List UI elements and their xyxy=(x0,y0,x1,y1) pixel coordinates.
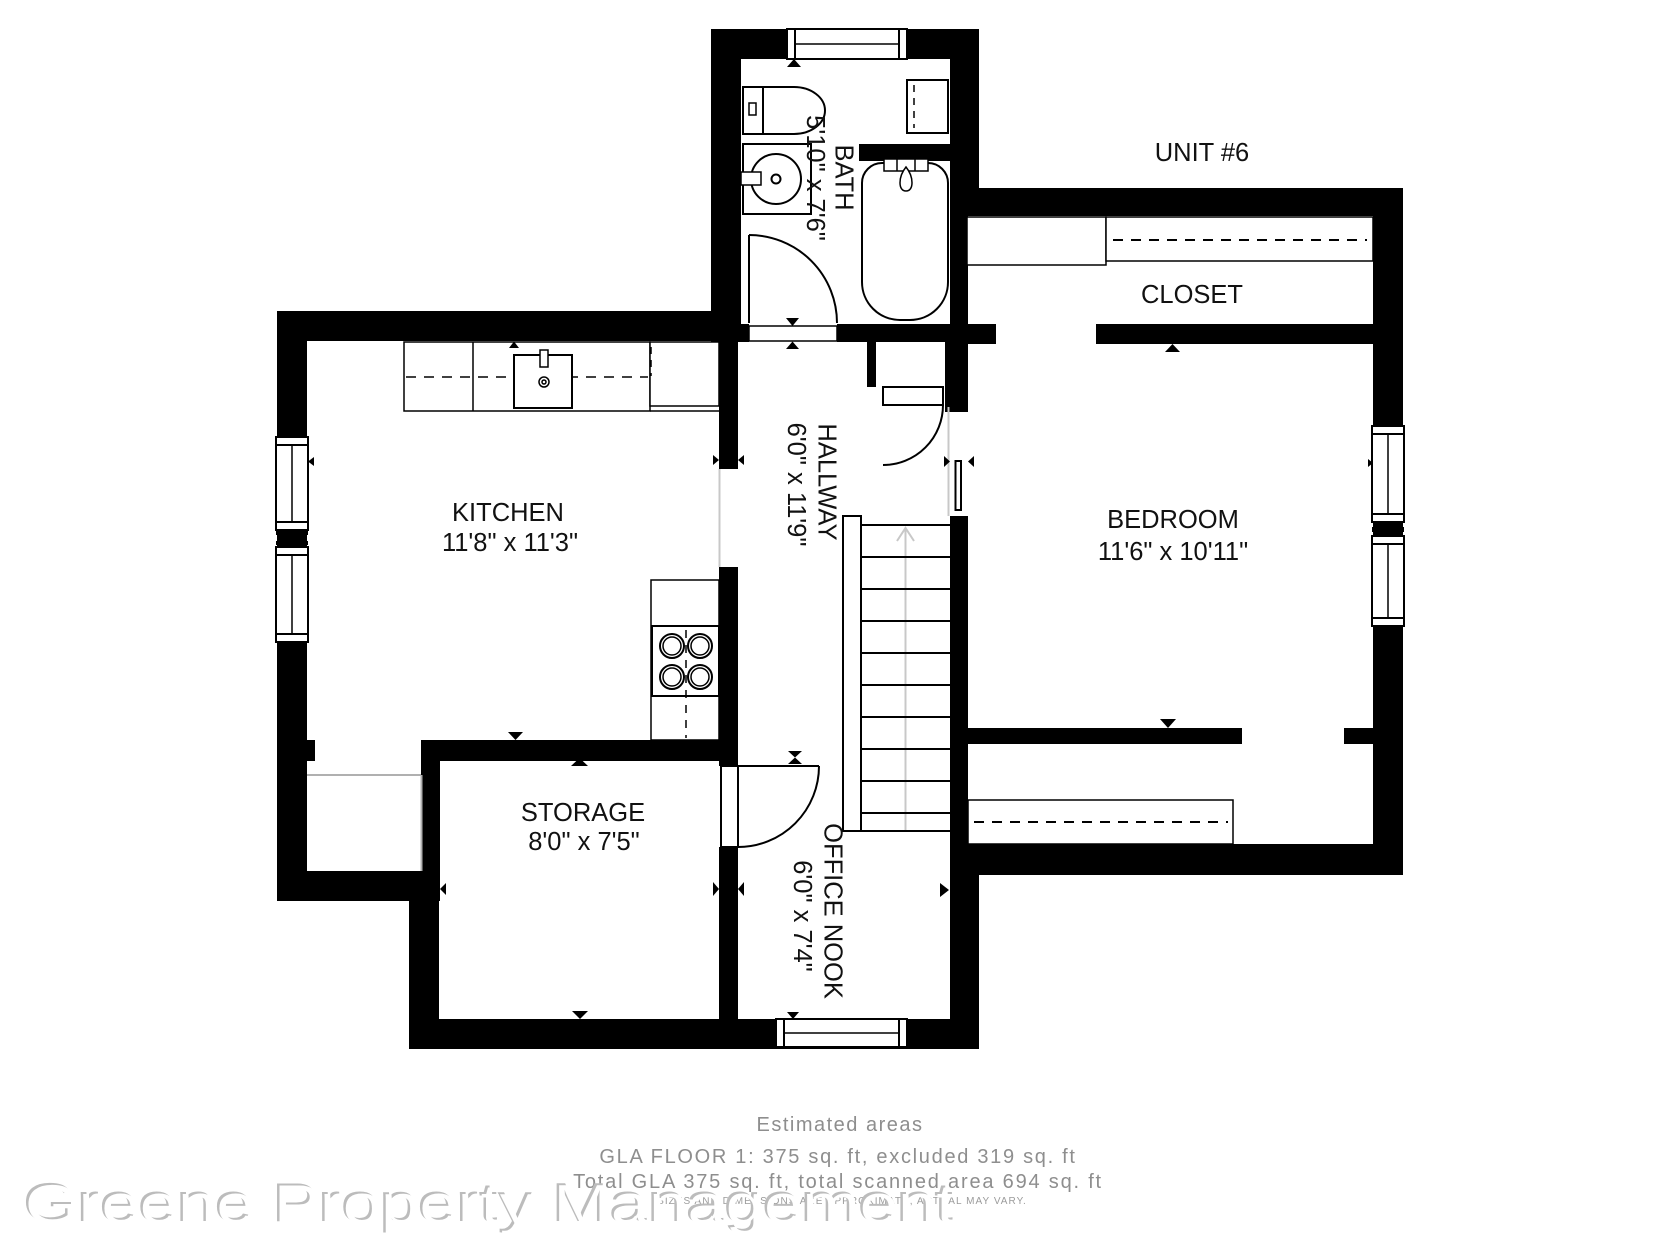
svg-text:BATH: BATH xyxy=(830,144,858,210)
svg-text:11'6" x 10'11": 11'6" x 10'11" xyxy=(1098,538,1248,566)
svg-text:Estimated areas: Estimated areas xyxy=(756,1114,923,1136)
svg-text:BEDROOM: BEDROOM xyxy=(1107,506,1239,534)
svg-text:11'8" x 11'3": 11'8" x 11'3" xyxy=(442,529,578,557)
svg-text:OFFICE NOOK: OFFICE NOOK xyxy=(819,823,847,999)
svg-text:5'10" x 7'6": 5'10" x 7'6" xyxy=(801,115,829,241)
svg-text:6'0" x 7'4": 6'0" x 7'4" xyxy=(788,860,816,972)
svg-text:6'0" x 11'9": 6'0" x 11'9" xyxy=(782,423,810,547)
svg-text:UNIT #6: UNIT #6 xyxy=(1155,139,1249,167)
svg-text:CLOSET: CLOSET xyxy=(1141,281,1243,309)
svg-text:HALLWAY: HALLWAY xyxy=(813,423,841,540)
svg-text:STORAGE: STORAGE xyxy=(521,799,645,827)
svg-text:8'0" x 7'5": 8'0" x 7'5" xyxy=(528,828,640,856)
svg-text:GLA FLOOR 1: 375 sq. ft, exclu: GLA FLOOR 1: 375 sq. ft, excluded 319 sq… xyxy=(599,1146,1076,1168)
svg-text:Greene Property Management: Greene Property Management xyxy=(25,1174,956,1235)
svg-text:KITCHEN: KITCHEN xyxy=(452,499,564,527)
